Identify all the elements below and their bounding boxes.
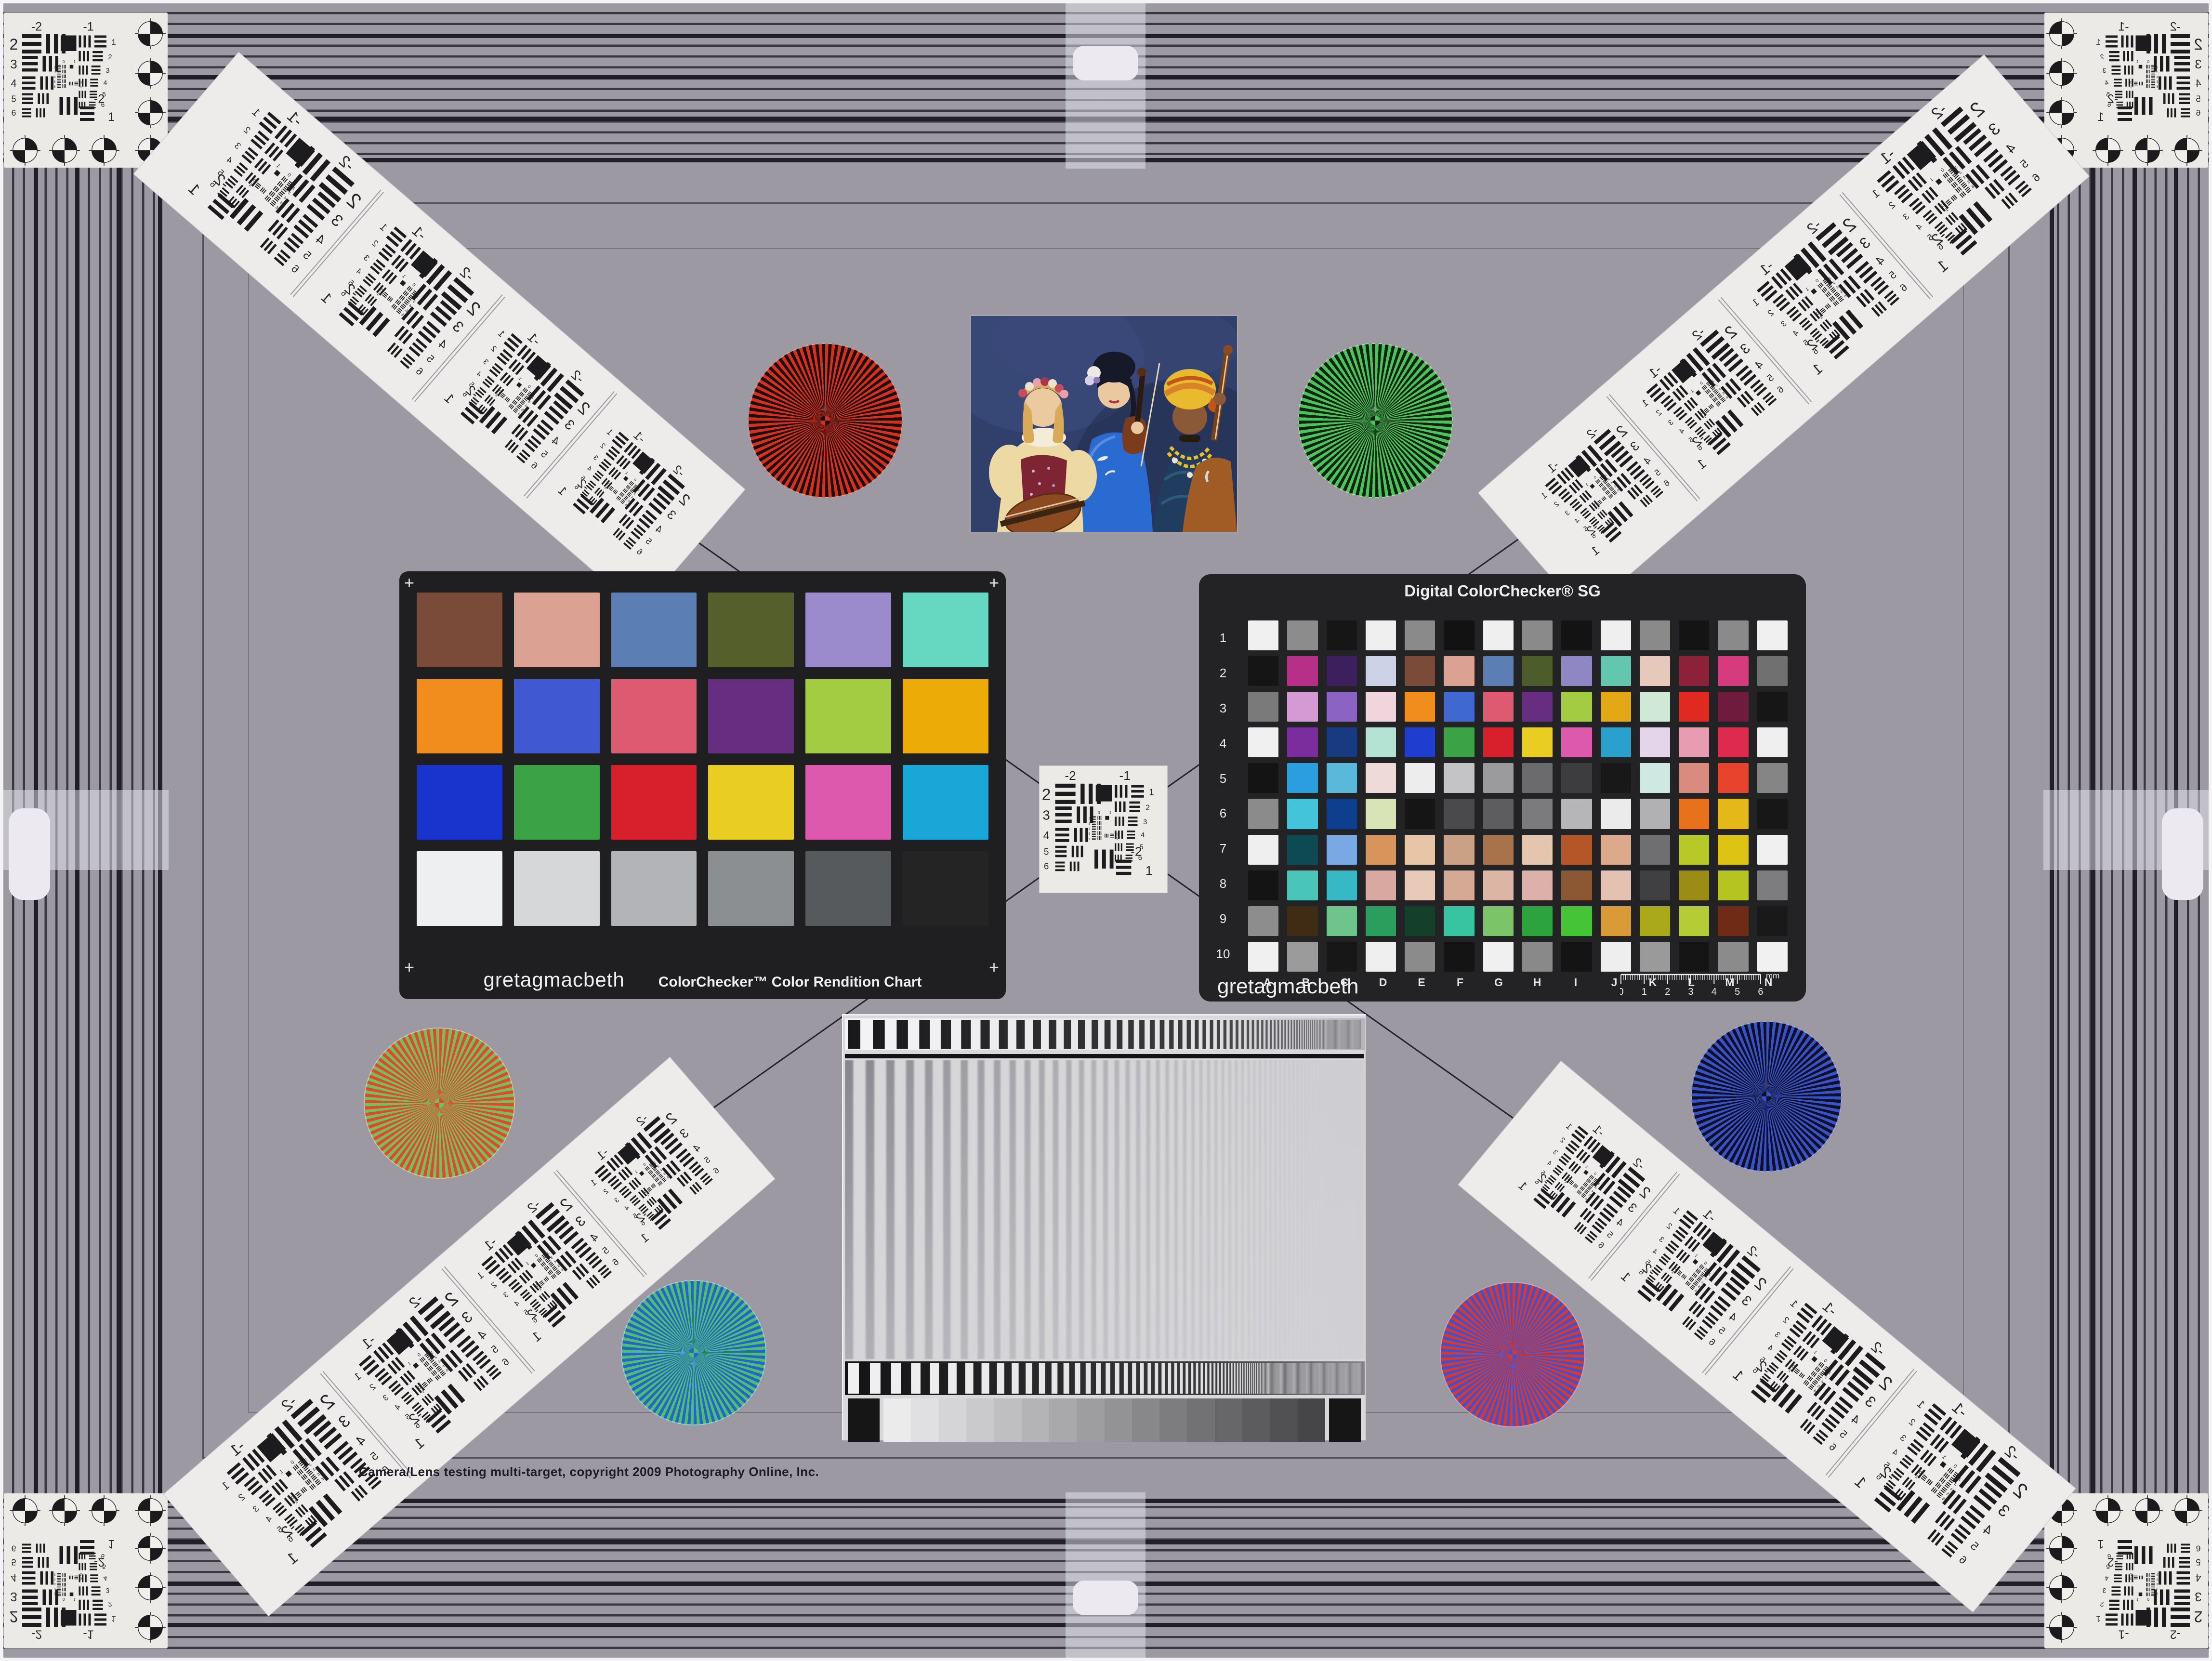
sg-color-patch	[1757, 942, 1788, 972]
sg-column-label: D	[1379, 976, 1387, 989]
wedge-gray-step	[911, 1398, 938, 1442]
sg-color-patch	[1601, 835, 1631, 865]
sg-row-label: 5	[1220, 771, 1226, 786]
cc-color-patch	[903, 679, 988, 753]
sg-color-patch	[1405, 799, 1435, 829]
sg-color-patch	[1757, 692, 1788, 722]
sg-color-patch	[1679, 799, 1709, 829]
sg-color-patch	[1640, 870, 1670, 900]
usaf-target-icon	[8, 1523, 128, 1644]
sg-color-patch	[1483, 727, 1514, 757]
wedge-gray-step	[1077, 1398, 1104, 1442]
registration-quadrant-mark-icon	[2046, 1572, 2078, 1604]
registration-quadrant-mark-icon	[134, 97, 166, 129]
cc-color-patch	[417, 851, 502, 926]
sg-color-patch	[1640, 692, 1670, 722]
cc-color-patch	[611, 765, 697, 840]
sg-color-patch	[1601, 656, 1631, 686]
sg-color-patch	[1405, 692, 1435, 722]
center-resolution-target	[1040, 766, 1167, 893]
registration-quadrant-mark-icon	[2171, 134, 2203, 166]
sg-color-patch	[1561, 870, 1592, 900]
sg-row-label: 1	[1220, 631, 1226, 646]
sg-row-label: 6	[1220, 806, 1226, 821]
sg-color-patch	[1327, 763, 1357, 793]
wedge-gray-step	[1022, 1398, 1049, 1442]
sg-color-patch	[1757, 763, 1788, 793]
edge-tab-left	[9, 808, 50, 900]
registration-quadrant-mark-icon	[88, 134, 120, 166]
sg-color-patch	[1718, 763, 1748, 793]
usaf-target-icon	[2084, 1523, 2204, 1644]
sg-color-patch	[1522, 835, 1553, 865]
corner-resolution-target-top-left	[4, 13, 168, 168]
sg-color-patch	[1601, 799, 1631, 829]
sg-color-patch	[1327, 835, 1357, 865]
registration-quadrant-mark-icon	[9, 1495, 41, 1527]
sg-color-patch	[1718, 656, 1748, 686]
sg-color-patch	[1640, 799, 1670, 829]
sg-color-patch	[1718, 906, 1748, 936]
starburst-center-mark	[820, 416, 830, 425]
camera-lens-test-chart: + + + + gretagmacbeth ColorChecker™ Colo…	[0, 0, 2212, 1661]
sg-color-patch	[1248, 942, 1278, 972]
sg-color-patch	[1327, 656, 1357, 686]
wedge-gray-step	[1270, 1398, 1297, 1442]
sg-row-label: 8	[1220, 876, 1226, 891]
starburst-green-black	[1298, 343, 1453, 498]
sg-color-patch	[1444, 692, 1474, 722]
sg-color-patch	[1366, 799, 1396, 829]
frequency-sweep-chart	[842, 1014, 1366, 1440]
sg-color-patch	[1522, 942, 1553, 972]
sg-color-patch	[1405, 620, 1435, 650]
sg-patch-grid	[1248, 620, 1788, 972]
wedge-black-cap	[848, 1398, 880, 1442]
sg-color-patch	[1287, 763, 1317, 793]
sg-color-patch	[1679, 870, 1709, 900]
sg-color-patch	[1483, 906, 1514, 936]
cc-color-patch	[805, 765, 891, 840]
svg-text:6: 6	[1758, 987, 1763, 997]
sg-column-label: H	[1533, 976, 1541, 989]
crop-mark-icon: +	[989, 574, 999, 592]
sg-row-label: 3	[1220, 701, 1226, 716]
sg-color-patch	[1757, 870, 1788, 900]
sg-color-patch	[1522, 870, 1553, 900]
sg-color-patch	[1248, 763, 1278, 793]
sg-color-patch	[1405, 727, 1435, 757]
sg-color-patch	[1640, 763, 1670, 793]
sg-color-patch	[1483, 763, 1514, 793]
cc-color-patch	[805, 851, 891, 926]
cc-color-patch	[417, 765, 502, 840]
sg-color-patch	[1522, 620, 1553, 650]
sg-column-label: G	[1494, 976, 1503, 989]
bar-sweep-bottom	[845, 1361, 1365, 1395]
sg-color-patch	[1718, 692, 1748, 722]
sg-color-patch	[1287, 835, 1317, 865]
sg-color-patch	[1483, 620, 1514, 650]
wedge-gray-step	[966, 1398, 994, 1442]
sg-color-patch	[1679, 656, 1709, 686]
sg-color-patch	[1757, 835, 1788, 865]
sg-color-patch	[1287, 727, 1317, 757]
cc-color-patch	[708, 679, 794, 753]
sg-color-patch	[1640, 656, 1670, 686]
sg-color-patch	[1287, 942, 1317, 972]
sg-color-patch	[1679, 906, 1709, 936]
sg-color-patch	[1522, 763, 1553, 793]
sg-row-label: 9	[1220, 911, 1226, 926]
cc-color-patch	[903, 593, 988, 667]
sg-color-patch	[1718, 620, 1748, 650]
sg-color-patch	[1757, 656, 1788, 686]
sweep-separator-line	[845, 1054, 1364, 1058]
sg-color-patch	[1327, 799, 1357, 829]
cc-color-patch	[708, 851, 794, 926]
sg-color-patch	[1561, 656, 1592, 686]
sg-color-patch	[1522, 906, 1553, 936]
registration-quadrant-mark-icon	[134, 1572, 166, 1604]
sg-color-patch	[1444, 620, 1474, 650]
wedge-gray-step	[1298, 1398, 1325, 1442]
sg-color-patch	[1601, 870, 1631, 900]
starburst-blue-black	[1691, 1021, 1842, 1172]
sg-color-patch	[1366, 692, 1396, 722]
sg-color-patch	[1757, 727, 1788, 757]
sg-color-patch	[1444, 906, 1474, 936]
usaf-target-icon	[1040, 766, 1167, 893]
grayscale-step-wedge	[848, 1398, 1361, 1442]
sg-color-patch	[1287, 870, 1317, 900]
registration-quadrant-mark-icon	[134, 18, 166, 50]
sg-row-label: 7	[1220, 841, 1226, 856]
svg-text:mm: mm	[1766, 971, 1779, 980]
sg-color-patch	[1483, 799, 1514, 829]
cc-color-patch	[611, 851, 697, 926]
sg-color-patch	[1444, 763, 1474, 793]
sg-color-patch	[1601, 942, 1631, 972]
sg-color-patch	[1248, 906, 1278, 936]
corner-resolution-target-bottom-left	[4, 1493, 168, 1648]
sg-row-label: 2	[1220, 666, 1226, 681]
wedge-gray-step	[1049, 1398, 1077, 1442]
sg-color-patch	[1366, 620, 1396, 650]
registration-quadrant-mark-icon	[2171, 1495, 2203, 1527]
sg-color-patch	[1327, 620, 1357, 650]
sg-color-patch	[1483, 656, 1514, 686]
registration-quadrant-mark-icon	[2046, 97, 2078, 129]
registration-quadrant-mark-icon	[134, 1532, 166, 1564]
sg-color-patch	[1483, 942, 1514, 972]
sg-color-patch	[1444, 835, 1474, 865]
cc-color-patch	[514, 679, 600, 753]
starburst-center-mark	[689, 1348, 698, 1358]
starburst-center-mark	[1370, 416, 1380, 425]
sg-color-patch	[1757, 620, 1788, 650]
sg-brand-label: gretagmacbeth	[1217, 975, 1359, 999]
edge-tab-right	[2162, 808, 2203, 900]
sg-color-patch	[1561, 835, 1592, 865]
edge-tab-top	[1073, 46, 1138, 80]
registration-quadrant-mark-icon	[134, 1611, 166, 1643]
sg-color-patch	[1601, 692, 1631, 722]
registration-quadrant-mark-icon	[2046, 1532, 2078, 1564]
cc-title-label: ColorChecker™ Color Rendition Chart	[658, 974, 922, 990]
sg-color-patch	[1287, 799, 1317, 829]
cc-caption: gretagmacbeth ColorChecker™ Color Rendit…	[399, 968, 1006, 991]
sg-color-patch	[1366, 906, 1396, 936]
sg-color-patch	[1248, 799, 1278, 829]
sg-color-patch	[1327, 727, 1357, 757]
cc-color-patch	[708, 593, 794, 667]
registration-quadrant-mark-icon	[88, 1495, 120, 1527]
registration-quadrant-mark-icon	[2132, 1495, 2163, 1527]
sg-color-patch	[1327, 942, 1357, 972]
starburst-center-mark	[1508, 1350, 1517, 1359]
corner-resolution-target-top-right	[2044, 13, 2208, 168]
sg-color-patch	[1561, 906, 1592, 936]
registration-quadrant-mark-icon	[9, 134, 41, 166]
cc-patch-grid	[417, 593, 988, 926]
sg-color-patch	[1561, 942, 1592, 972]
sg-row-label: 4	[1220, 736, 1226, 751]
sg-color-patch	[1366, 763, 1396, 793]
sg-color-patch	[1679, 692, 1709, 722]
sg-color-patch	[1248, 835, 1278, 865]
sg-column-label: E	[1418, 976, 1425, 989]
sg-color-patch	[1405, 763, 1435, 793]
sg-color-patch	[1405, 656, 1435, 686]
sg-color-patch	[1679, 835, 1709, 865]
cc-color-patch	[805, 593, 891, 667]
registration-quadrant-mark-icon	[2092, 1495, 2124, 1527]
sg-color-patch	[1522, 656, 1553, 686]
wedge-gray-step	[1187, 1398, 1214, 1442]
cc-color-patch	[903, 851, 988, 926]
crop-mark-icon: +	[404, 574, 414, 592]
sg-color-patch	[1601, 727, 1631, 757]
edge-center-band-bottom	[1066, 1492, 1145, 1658]
sg-color-patch	[1287, 620, 1317, 650]
sg-color-patch	[1640, 620, 1670, 650]
sg-color-patch	[1444, 942, 1474, 972]
sg-color-patch	[1366, 942, 1396, 972]
sg-color-patch	[1287, 656, 1317, 686]
sg-color-patch	[1248, 656, 1278, 686]
sg-column-label: I	[1574, 976, 1577, 989]
registration-quadrant-mark-icon	[2046, 57, 2078, 89]
svg-text:3: 3	[1688, 987, 1693, 997]
registration-quadrant-mark-icon	[2046, 1611, 2078, 1643]
cc-brand-label: gretagmacbeth	[484, 968, 625, 991]
sg-color-patch	[1366, 835, 1396, 865]
sg-title-label: Digital ColorChecker® SG	[1199, 582, 1806, 600]
sg-color-patch	[1248, 692, 1278, 722]
wedge-gray-step	[1215, 1398, 1242, 1442]
sg-column-label: F	[1457, 976, 1463, 989]
sg-color-patch	[1640, 942, 1670, 972]
sg-color-patch	[1601, 906, 1631, 936]
cc-color-patch	[903, 765, 988, 840]
sg-color-patch	[1248, 620, 1278, 650]
sg-color-patch	[1327, 692, 1357, 722]
sg-color-patch	[1718, 799, 1748, 829]
sg-color-patch	[1405, 906, 1435, 936]
svg-text:4: 4	[1712, 987, 1717, 997]
wedge-gray-step	[994, 1398, 1021, 1442]
cc-color-patch	[611, 679, 697, 753]
cc-color-patch	[417, 593, 502, 667]
sg-color-patch	[1718, 942, 1748, 972]
wedge-gray-step	[1105, 1398, 1132, 1442]
sg-color-patch	[1248, 870, 1278, 900]
svg-text:0: 0	[1620, 987, 1624, 997]
svg-text:2: 2	[1665, 987, 1670, 997]
sg-row-labels: 12345678910	[1212, 620, 1234, 972]
sg-color-patch	[1287, 906, 1317, 936]
wedge-black-cap	[1329, 1398, 1361, 1442]
sg-color-patch	[1679, 763, 1709, 793]
cc-color-patch	[514, 851, 600, 926]
sg-color-patch	[1522, 692, 1553, 722]
sg-color-patch	[1483, 870, 1514, 900]
sg-color-patch	[1640, 906, 1670, 936]
sg-color-patch	[1601, 763, 1631, 793]
starburst-center-mark	[434, 1098, 444, 1108]
usaf-target-icon	[8, 17, 128, 138]
sg-color-patch	[1679, 942, 1709, 972]
sg-color-patch	[1366, 656, 1396, 686]
sg-color-patch	[1679, 727, 1709, 757]
wedge-gray-step	[1159, 1398, 1187, 1442]
sg-color-patch	[1718, 835, 1748, 865]
mm-ruler: 0123456mm	[1620, 970, 1784, 997]
sg-color-patch	[1405, 835, 1435, 865]
sg-color-patch	[1640, 835, 1670, 865]
sg-color-patch	[1757, 799, 1788, 829]
cc-color-patch	[417, 679, 502, 753]
sg-row-label: 10	[1216, 947, 1230, 962]
svg-text:1: 1	[1642, 987, 1647, 997]
sg-color-patch	[1561, 692, 1592, 722]
sg-color-patch	[1640, 727, 1670, 757]
sg-color-patch	[1444, 656, 1474, 686]
reference-photo-musicians	[971, 316, 1237, 532]
sine-sweep-pattern	[845, 1060, 1365, 1359]
starburst-green-blue	[621, 1280, 766, 1425]
sg-color-patch	[1718, 870, 1748, 900]
sg-color-patch	[1601, 620, 1631, 650]
wedge-gray-step	[883, 1398, 911, 1442]
registration-quadrant-mark-icon	[134, 57, 166, 89]
sg-color-patch	[1366, 870, 1396, 900]
edge-tab-bottom	[1073, 1581, 1138, 1615]
sg-color-patch	[1444, 799, 1474, 829]
starburst-red-blue	[1440, 1282, 1585, 1427]
sg-color-patch	[1366, 727, 1396, 757]
sg-color-patch	[1561, 620, 1592, 650]
starburst-red-black	[748, 343, 903, 498]
registration-quadrant-mark-icon	[2092, 134, 2124, 166]
sg-color-patch	[1405, 942, 1435, 972]
cc-color-patch	[805, 679, 891, 753]
starburst-center-mark	[1762, 1092, 1771, 1101]
sg-color-patch	[1405, 870, 1435, 900]
sg-color-patch	[1287, 692, 1317, 722]
sg-color-patch	[1718, 727, 1748, 757]
sg-column-label: J	[1611, 976, 1618, 989]
wedge-gray-step	[1132, 1398, 1159, 1442]
svg-text:5: 5	[1735, 987, 1740, 997]
registration-quadrant-mark-icon	[49, 1495, 80, 1527]
sg-color-patch	[1522, 727, 1553, 757]
wedge-gray-step	[939, 1398, 966, 1442]
colorchecker-24-chart: + + + + gretagmacbeth ColorChecker™ Colo…	[399, 571, 1006, 999]
sg-color-patch	[1757, 906, 1788, 936]
copyright-text: Camera/Lens testing multi-target, copyri…	[359, 1464, 819, 1479]
cc-color-patch	[514, 765, 600, 840]
usaf-target-icon	[2084, 17, 2204, 138]
digital-colorchecker-sg-chart: Digital ColorChecker® SG 12345678910 ABC…	[1199, 574, 1806, 1002]
sg-color-patch	[1444, 870, 1474, 900]
wedge-gray-step	[1242, 1398, 1270, 1442]
sg-color-patch	[1444, 727, 1474, 757]
sg-color-patch	[1561, 799, 1592, 829]
sg-color-patch	[1561, 763, 1592, 793]
sg-color-patch	[1327, 906, 1357, 936]
starburst-red-green	[364, 1028, 515, 1179]
registration-quadrant-mark-icon	[2132, 134, 2163, 166]
edge-center-band-top	[1066, 3, 1145, 169]
cc-color-patch	[611, 593, 697, 667]
cc-color-patch	[708, 765, 794, 840]
sg-color-patch	[1679, 620, 1709, 650]
registration-quadrant-mark-icon	[2046, 18, 2078, 50]
sg-color-patch	[1248, 727, 1278, 757]
sg-color-patch	[1483, 835, 1514, 865]
bar-sweep-top	[845, 1018, 1365, 1050]
sg-color-patch	[1483, 692, 1514, 722]
corner-resolution-target-bottom-right	[2044, 1493, 2208, 1648]
sg-color-patch	[1561, 727, 1592, 757]
registration-quadrant-mark-icon	[49, 134, 80, 166]
cc-color-patch	[514, 593, 600, 667]
sg-color-patch	[1327, 870, 1357, 900]
sg-color-patch	[1522, 799, 1553, 829]
registration-quadrant-mark-icon	[134, 1495, 166, 1527]
